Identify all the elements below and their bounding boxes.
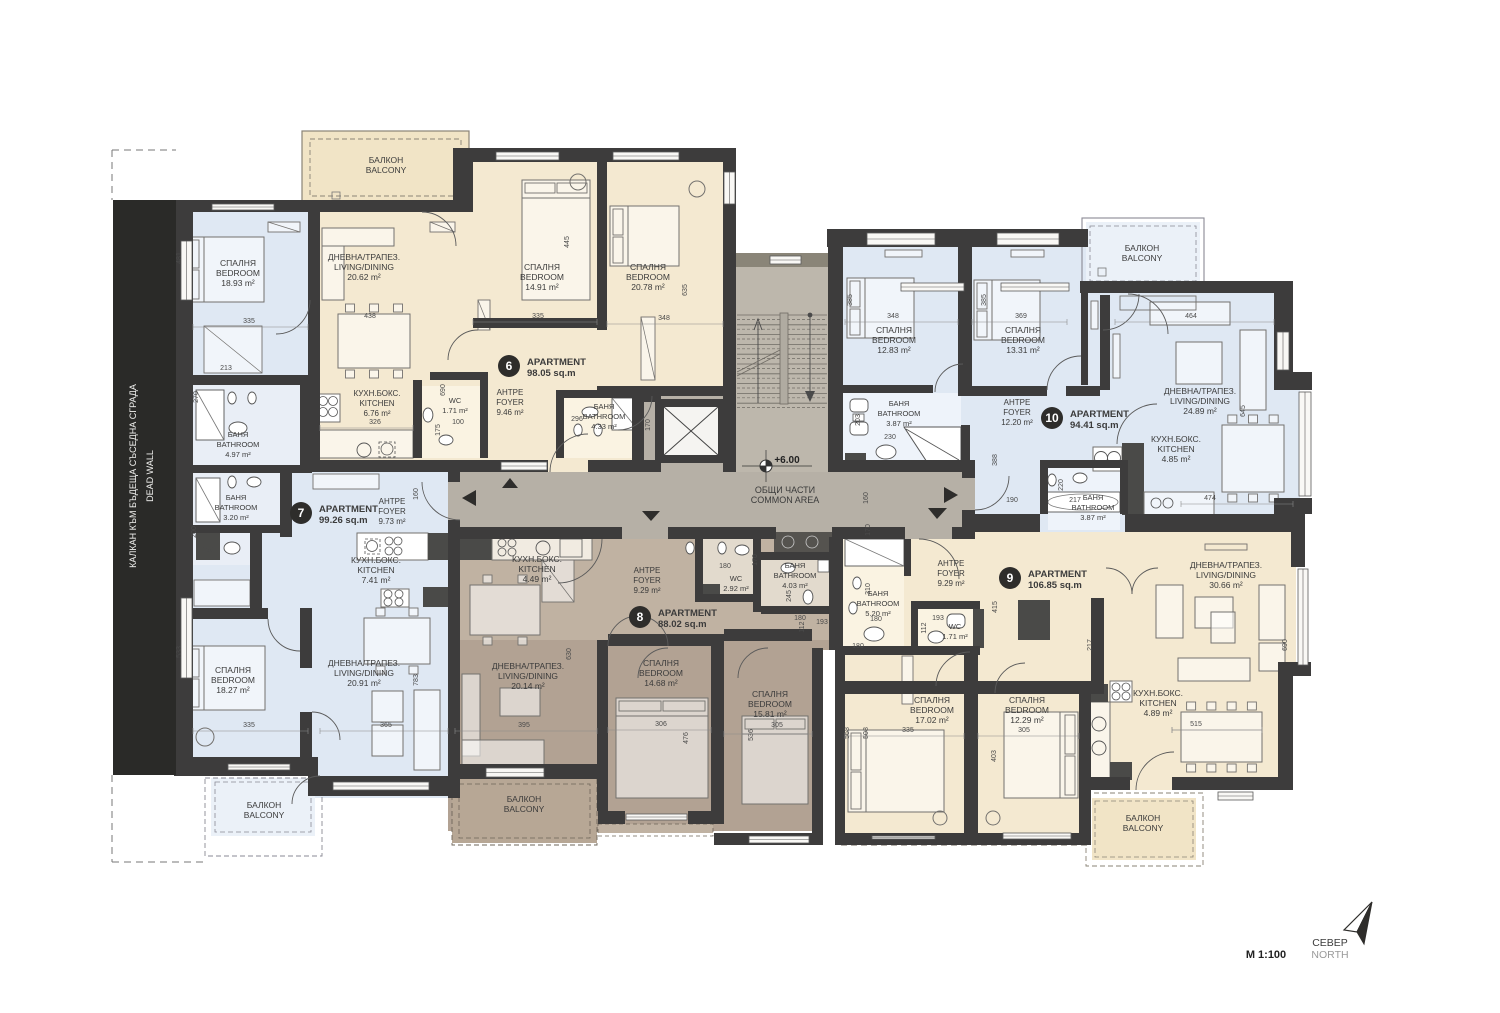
svg-text:4.85 m²: 4.85 m²	[1162, 454, 1191, 464]
svg-text:365: 365	[380, 722, 392, 729]
svg-text:ДНЕВНА/ТРАПЕЗ.: ДНЕВНА/ТРАПЕЗ.	[1190, 560, 1262, 570]
svg-text:ОБЩИ ЧАСТИ: ОБЩИ ЧАСТИ	[755, 485, 815, 495]
svg-text:296: 296	[571, 416, 583, 423]
svg-text:515: 515	[1190, 721, 1202, 728]
svg-text:BALCONY: BALCONY	[1122, 253, 1163, 263]
svg-text:12.20 m²: 12.20 m²	[1001, 418, 1033, 427]
svg-text:+6.00: +6.00	[774, 455, 800, 466]
svg-text:FOYER: FOYER	[1003, 408, 1031, 417]
svg-text:СЕВЕР: СЕВЕР	[1312, 937, 1348, 949]
svg-text:193: 193	[816, 619, 828, 626]
svg-text:200: 200	[191, 526, 198, 538]
svg-text:BATHROOM: BATHROOM	[1072, 503, 1115, 512]
svg-text:БАНЯ: БАНЯ	[1083, 493, 1104, 502]
svg-text:АНТРЕ: АНТРЕ	[379, 497, 406, 506]
svg-text:99.26 sq.m: 99.26 sq.m	[319, 515, 368, 526]
svg-text:160: 160	[202, 547, 214, 554]
svg-text:15.81 m²: 15.81 m²	[753, 709, 787, 719]
svg-text:100: 100	[452, 419, 464, 426]
svg-text:395: 395	[518, 722, 530, 729]
svg-text:18.27 m²: 18.27 m²	[216, 685, 250, 695]
svg-text:112: 112	[921, 622, 928, 633]
svg-text:24.89 m²: 24.89 m²	[1183, 406, 1217, 416]
svg-text:190: 190	[1006, 497, 1018, 504]
svg-text:BEDROOM: BEDROOM	[1005, 705, 1049, 715]
svg-text:ДНЕВНА/ТРАПЕЗ.: ДНЕВНА/ТРАПЕЗ.	[1164, 386, 1236, 396]
svg-text:СПАЛНЯ: СПАЛНЯ	[524, 262, 560, 272]
svg-text:180: 180	[794, 615, 806, 622]
svg-text:193: 193	[932, 615, 944, 622]
svg-text:WC: WC	[949, 622, 962, 631]
svg-text:170: 170	[645, 419, 652, 431]
svg-text:BATHROOM: BATHROOM	[215, 503, 258, 512]
svg-text:БАНЯ: БАНЯ	[226, 493, 247, 502]
svg-text:ДНЕВНА/ТРАПЕЗ.: ДНЕВНА/ТРАПЕЗ.	[328, 252, 400, 262]
svg-text:445: 445	[564, 236, 571, 248]
svg-text:6: 6	[506, 359, 513, 373]
svg-text:783: 783	[413, 674, 420, 686]
svg-text:4.33 m²: 4.33 m²	[591, 422, 617, 431]
svg-text:9: 9	[1007, 571, 1014, 585]
svg-text:БАЛКОН: БАЛКОН	[1126, 813, 1160, 823]
svg-text:180: 180	[852, 643, 864, 650]
svg-text:160: 160	[413, 488, 420, 500]
svg-text:20.91 m²: 20.91 m²	[347, 678, 381, 688]
svg-text:305: 305	[1018, 727, 1030, 734]
svg-text:326: 326	[369, 419, 381, 426]
svg-text:СПАЛНЯ: СПАЛНЯ	[1009, 695, 1045, 705]
svg-text:12.83 m²: 12.83 m²	[877, 345, 911, 355]
svg-text:БАНЯ: БАНЯ	[889, 399, 910, 408]
svg-text:310: 310	[865, 583, 872, 595]
svg-text:94.41 sq.m: 94.41 sq.m	[1070, 420, 1119, 431]
svg-text:BEDROOM: BEDROOM	[626, 272, 670, 282]
svg-text:175: 175	[435, 424, 442, 436]
svg-text:BALCONY: BALCONY	[1123, 823, 1164, 833]
svg-text:СПАЛНЯ: СПАЛНЯ	[876, 325, 912, 335]
svg-text:COMMON AREA: COMMON AREA	[751, 495, 820, 505]
svg-text:160: 160	[863, 492, 870, 504]
svg-text:7: 7	[298, 506, 305, 520]
svg-text:СПАЛНЯ: СПАЛНЯ	[914, 695, 950, 705]
svg-text:4.97 m²: 4.97 m²	[225, 450, 251, 459]
svg-text:BALCONY: BALCONY	[504, 804, 545, 814]
svg-text:КАЛКАН КЪМ БЪДЕЩА СЪСЕДНА СГР: КАЛКАН КЪМ БЪДЕЩА СЪСЕДНА СГРАДА	[128, 384, 138, 568]
svg-text:3.87 m²: 3.87 m²	[1080, 513, 1106, 522]
svg-text:335: 335	[532, 313, 544, 320]
svg-text:9.29 m²: 9.29 m²	[937, 579, 964, 588]
svg-text:FOYER: FOYER	[496, 398, 524, 407]
svg-text:БАЛКОН: БАЛКОН	[247, 800, 281, 810]
svg-text:112: 112	[799, 621, 806, 632]
svg-text:690: 690	[440, 384, 447, 396]
svg-text:464: 464	[1185, 313, 1197, 320]
svg-text:635: 635	[682, 284, 689, 296]
svg-text:APARTMENT: APARTMENT	[658, 608, 717, 619]
svg-text:3.87 m²: 3.87 m²	[886, 419, 912, 428]
svg-text:BEDROOM: BEDROOM	[216, 268, 260, 278]
svg-text:270: 270	[193, 391, 200, 403]
svg-text:508: 508	[863, 727, 870, 739]
svg-text:KITCHEN: KITCHEN	[357, 565, 394, 575]
svg-text:306: 306	[655, 721, 667, 728]
svg-text:APARTMENT: APARTMENT	[527, 357, 586, 368]
svg-text:BATHROOM: BATHROOM	[878, 409, 921, 418]
svg-text:14.91 m²: 14.91 m²	[525, 282, 559, 292]
svg-text:1.71 m²: 1.71 m²	[442, 406, 468, 415]
svg-text:213: 213	[220, 365, 232, 372]
svg-text:KITCHEN: KITCHEN	[1157, 444, 1194, 454]
svg-text:415: 415	[992, 601, 999, 613]
svg-text:БАЛКОН: БАЛКОН	[369, 155, 403, 165]
svg-text:АНТРЕ: АНТРЕ	[634, 566, 661, 575]
svg-text:BEDROOM: BEDROOM	[520, 272, 564, 282]
svg-text:335: 335	[902, 727, 914, 734]
svg-text:FOYER: FOYER	[378, 507, 406, 516]
svg-text:4.89 m²: 4.89 m²	[1144, 708, 1173, 718]
svg-text:LIVING/DINING: LIVING/DINING	[1196, 570, 1256, 580]
svg-text:М 1:100: М 1:100	[1246, 949, 1286, 961]
svg-text:БАНЯ: БАНЯ	[594, 402, 615, 411]
svg-text:БАЛКОН: БАЛКОН	[1125, 243, 1159, 253]
svg-text:BEDROOM: BEDROOM	[211, 675, 255, 685]
svg-text:KITCHEN: KITCHEN	[518, 564, 555, 574]
svg-text:533: 533	[176, 646, 183, 658]
svg-text:170: 170	[752, 554, 759, 566]
svg-text:LIVING/DINING: LIVING/DINING	[334, 262, 394, 272]
svg-text:BALCONY: BALCONY	[366, 165, 407, 175]
svg-text:10: 10	[1045, 411, 1059, 425]
svg-text:348: 348	[887, 313, 899, 320]
svg-text:KITCHEN: KITCHEN	[1139, 698, 1176, 708]
svg-text:220: 220	[1058, 479, 1065, 491]
svg-text:БАНЯ: БАНЯ	[785, 561, 806, 570]
svg-text:4.03 m²: 4.03 m²	[782, 581, 808, 590]
svg-text:9.73 m²: 9.73 m²	[378, 517, 405, 526]
svg-text:30.66 m²: 30.66 m²	[1209, 580, 1243, 590]
svg-text:АНТРЕ: АНТРЕ	[497, 388, 524, 397]
svg-text:403: 403	[991, 750, 998, 762]
svg-text:385: 385	[981, 294, 988, 306]
svg-text:4.49 m²: 4.49 m²	[523, 574, 552, 584]
svg-text:645: 645	[1240, 405, 1247, 417]
svg-text:335: 335	[243, 722, 255, 729]
svg-text:ДНЕВНА/ТРАПЕЗ.: ДНЕВНА/ТРАПЕЗ.	[492, 661, 564, 671]
svg-text:СПАЛНЯ: СПАЛНЯ	[215, 665, 251, 675]
svg-text:СПАЛНЯ: СПАЛНЯ	[630, 262, 666, 272]
svg-text:690: 690	[1282, 639, 1289, 651]
svg-text:LIVING/DINING: LIVING/DINING	[334, 668, 394, 678]
svg-text:476: 476	[683, 732, 690, 744]
svg-text:98.05 sq.m: 98.05 sq.m	[527, 368, 576, 379]
svg-text:BEDROOM: BEDROOM	[748, 699, 792, 709]
svg-text:FOYER: FOYER	[633, 576, 661, 585]
svg-text:6.76 m²: 6.76 m²	[363, 409, 390, 418]
svg-text:КУХН.БОКС.: КУХН.БОКС.	[351, 555, 401, 565]
svg-text:КУХН.БОКС.: КУХН.БОКС.	[1133, 688, 1183, 698]
svg-text:WC: WC	[449, 396, 462, 405]
svg-text:1.71 m²: 1.71 m²	[942, 632, 968, 641]
svg-text:NORTH: NORTH	[1311, 949, 1348, 961]
svg-text:217: 217	[1087, 639, 1094, 651]
svg-text:BATHROOM: BATHROOM	[217, 440, 260, 449]
svg-text:12.29 m²: 12.29 m²	[1010, 715, 1044, 725]
svg-text:BALCONY: BALCONY	[244, 810, 285, 820]
svg-text:BEDROOM: BEDROOM	[1001, 335, 1045, 345]
svg-text:LIVING/DINING: LIVING/DINING	[1170, 396, 1230, 406]
svg-text:APARTMENT: APARTMENT	[319, 504, 378, 515]
svg-text:230: 230	[884, 434, 896, 441]
svg-text:438: 438	[364, 313, 376, 320]
svg-text:335: 335	[243, 318, 255, 325]
svg-text:WC: WC	[730, 574, 743, 583]
svg-text:245: 245	[786, 590, 793, 602]
svg-text:170: 170	[865, 524, 872, 536]
svg-text:385: 385	[847, 294, 854, 306]
svg-text:536: 536	[748, 729, 755, 741]
svg-text:БАНЯ: БАНЯ	[228, 430, 249, 439]
svg-text:481: 481	[176, 252, 183, 264]
svg-text:20.62 m²: 20.62 m²	[347, 272, 381, 282]
svg-text:217: 217	[1069, 497, 1081, 504]
svg-text:BATHROOM: BATHROOM	[583, 412, 626, 421]
svg-text:348: 348	[658, 315, 670, 322]
svg-text:3.20 m²: 3.20 m²	[223, 513, 249, 522]
svg-text:305: 305	[771, 722, 783, 729]
svg-text:BATHROOM: BATHROOM	[857, 599, 900, 608]
svg-text:АНТРЕ: АНТРЕ	[938, 559, 965, 568]
svg-text:20.78 m²: 20.78 m²	[631, 282, 665, 292]
svg-text:DEAD WALL: DEAD WALL	[145, 450, 155, 502]
svg-text:9.29 m²: 9.29 m²	[633, 586, 660, 595]
svg-text:88.02 sq.m: 88.02 sq.m	[658, 619, 707, 630]
svg-text:KITCHEN: KITCHEN	[359, 399, 394, 408]
svg-text:7.41 m²: 7.41 m²	[362, 575, 391, 585]
svg-text:18.93 m²: 18.93 m²	[221, 278, 255, 288]
svg-text:КУХН.БОКС.: КУХН.БОКС.	[353, 389, 400, 398]
svg-text:BEDROOM: BEDROOM	[910, 705, 954, 715]
svg-text:180: 180	[870, 616, 882, 623]
svg-text:630: 630	[566, 648, 573, 660]
svg-text:17.02 m²: 17.02 m²	[915, 715, 949, 725]
svg-text:ДНЕВНА/ТРАПЕЗ.: ДНЕВНА/ТРАПЕЗ.	[328, 658, 400, 668]
svg-text:9.46 m²: 9.46 m²	[496, 408, 523, 417]
svg-text:106.85 sq.m: 106.85 sq.m	[1028, 580, 1082, 591]
svg-text:8: 8	[637, 610, 644, 624]
svg-text:КУХН.БОКС.: КУХН.БОКС.	[1151, 434, 1201, 444]
svg-text:180: 180	[719, 563, 731, 570]
svg-text:КУХН.БОКС.: КУХН.БОКС.	[512, 554, 562, 564]
svg-text:СПАЛНЯ: СПАЛНЯ	[643, 658, 679, 668]
svg-text:LIVING/DINING: LIVING/DINING	[498, 671, 558, 681]
svg-text:APARTMENT: APARTMENT	[1070, 409, 1129, 420]
svg-text:APARTMENT: APARTMENT	[1028, 569, 1087, 580]
svg-text:BATHROOM: BATHROOM	[774, 571, 817, 580]
svg-text:BEDROOM: BEDROOM	[872, 335, 916, 345]
svg-text:СПАЛНЯ: СПАЛНЯ	[220, 258, 256, 268]
svg-text:13.31 m²: 13.31 m²	[1006, 345, 1040, 355]
svg-text:20.14 m²: 20.14 m²	[511, 681, 545, 691]
svg-text:369: 369	[1015, 313, 1027, 320]
svg-text:14.68 m²: 14.68 m²	[644, 678, 678, 688]
svg-text:АНТРЕ: АНТРЕ	[1004, 398, 1031, 407]
svg-text:203: 203	[855, 414, 862, 426]
svg-text:474: 474	[1204, 495, 1216, 502]
svg-text:2.92 m²: 2.92 m²	[723, 584, 749, 593]
svg-text:388: 388	[992, 454, 999, 466]
svg-text:СПАЛНЯ: СПАЛНЯ	[1005, 325, 1041, 335]
svg-text:БАЛКОН: БАЛКОН	[507, 794, 541, 804]
svg-text:FOYER: FOYER	[937, 569, 965, 578]
svg-text:BEDROOM: BEDROOM	[639, 668, 683, 678]
svg-text:СПАЛНЯ: СПАЛНЯ	[752, 689, 788, 699]
